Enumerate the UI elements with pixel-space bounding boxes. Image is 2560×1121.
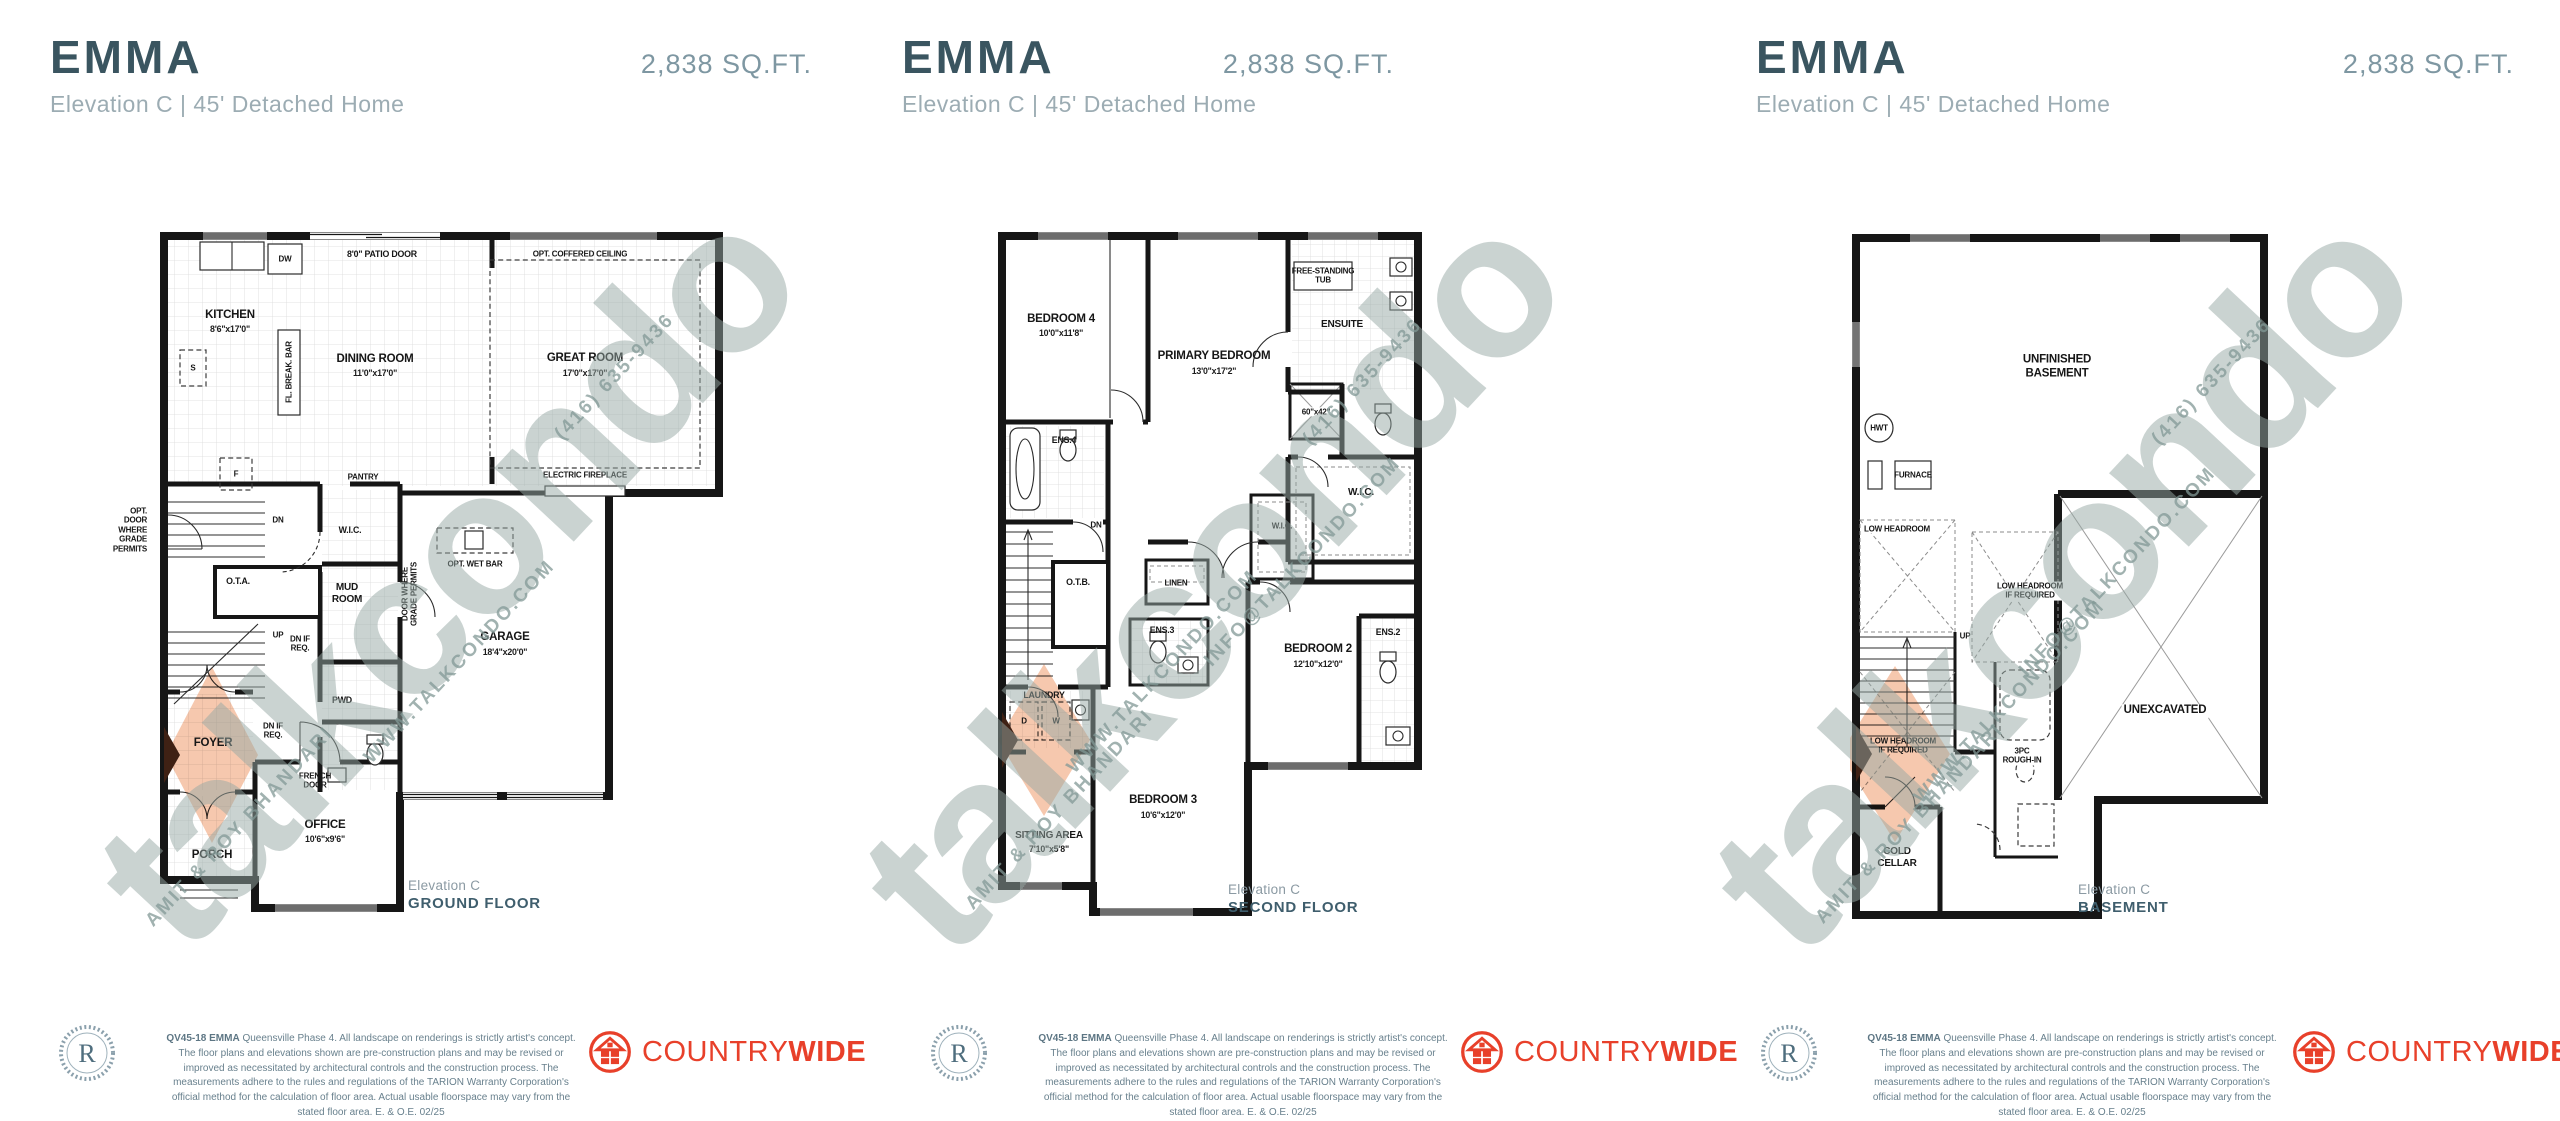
floor-caption: Elevation C GROUND FLOOR — [408, 878, 541, 912]
unexcavated-area — [2058, 494, 2264, 800]
seal-icon: R — [1760, 1024, 1818, 1082]
label-opt-door-grade: OPT. DOOR WHERE GRADE PERMITS — [113, 506, 147, 553]
label-ensuite: ENSUITE — [1321, 319, 1363, 331]
label-break-bar: FL. BREAK. BAR — [284, 341, 293, 403]
caption-elevation: Elevation C — [2078, 882, 2169, 897]
floor-caption: Elevation C SECOND FLOOR — [1228, 882, 1358, 916]
tile-floor-main — [168, 240, 715, 486]
countrywide-wordmark: COUNTRYWIDE — [2346, 1036, 2560, 1069]
plan-sqft: 2,838 SQ.FT. — [641, 49, 812, 80]
panel-second-floor: EMMA 2,838 SQ.FT. Elevation C | 45' Deta… — [902, 30, 1394, 118]
plan-title: EMMA — [50, 30, 203, 84]
label-ens4: ENS.4 — [1052, 435, 1076, 445]
label-dn-if-req-1: DN IF REQ. — [290, 635, 310, 654]
label-pwd: PWD — [332, 695, 352, 705]
label-kitchen: KITCHEN — [205, 309, 255, 323]
label-laundry: LAUNDRY — [1023, 690, 1064, 700]
caption-elevation: Elevation C — [1228, 882, 1358, 897]
disclaimer: QV45-18 EMMA Queensville Phase 4. All la… — [1866, 1032, 2278, 1121]
plan-title: EMMA — [902, 30, 1055, 84]
countrywide-logo: COUNTRYWIDE — [2292, 1030, 2560, 1074]
panel-header: EMMA 2,838 SQ.FT. — [50, 30, 812, 84]
plan-sqft: 2,838 SQ.FT. — [2343, 49, 2514, 80]
label-fireplace: ELECTRIC FIREPLACE — [541, 470, 629, 479]
brand-regular: COUNTRY — [642, 1036, 788, 1068]
label-great-dims: 17'0"x17'0" — [563, 368, 608, 378]
disclaimer-body: Queensville Phase 4. All landscape on re… — [1044, 1033, 1448, 1118]
label-bedroom2-dims: 12'10"x12'0" — [1293, 659, 1342, 669]
plan-title: EMMA — [1756, 30, 1909, 84]
label-office: OFFICE — [305, 819, 346, 833]
label-sitting-dims: 7'10"x5'8" — [1029, 844, 1069, 854]
label-coffered: OPT. COFFERED CEILING — [533, 249, 627, 258]
label-dw: DW — [279, 254, 292, 263]
label-linen: LINEN — [1164, 578, 1187, 587]
porch-steps — [180, 890, 238, 898]
seal-letter: R — [1780, 1039, 1798, 1068]
label-up: UP — [1960, 631, 1971, 640]
countrywide-house-icon — [588, 1030, 632, 1074]
label-kitchen-dims: 8'6"x17'0" — [210, 324, 250, 334]
label-bedroom4: BEDROOM 4 — [1027, 313, 1095, 327]
brand-bold: WIDE — [1660, 1036, 1738, 1068]
floor-caption: Elevation C BASEMENT — [2078, 882, 2169, 916]
panel-ground-floor: EMMA 2,838 SQ.FT. Elevation C | 45' Deta… — [50, 30, 812, 118]
label-porch: PORCH — [192, 849, 233, 863]
label-tub: FREE-STANDING TUB — [1292, 267, 1355, 286]
countrywide-wordmark: COUNTRYWIDE — [1514, 1036, 1738, 1069]
label-office-dims: 10'6"x9'6" — [305, 834, 345, 844]
label-dn: DN — [272, 515, 283, 524]
plan-subtitle: Elevation C | 45' Detached Home — [902, 91, 1394, 118]
second-floor-plan: talkcondo (416) 635-9436 INFO@TALKCONDO.… — [998, 232, 1422, 934]
countrywide-logo: COUNTRYWIDE — [1460, 1030, 1738, 1074]
plan-sqft: 2,838 SQ.FT. — [1223, 49, 1394, 80]
label-wet-bar: OPT. WET BAR — [448, 559, 503, 568]
label-bedroom4-dims: 10'0"x11'8" — [1039, 328, 1083, 338]
label-dn: DN — [1090, 520, 1101, 529]
label-fridge: F — [234, 469, 239, 478]
disclaimer-body: Queensville Phase 4. All landscape on re… — [1873, 1033, 2277, 1118]
windows — [1853, 235, 2231, 368]
seal-icon: R — [58, 1024, 116, 1082]
caption-elevation: Elevation C — [408, 878, 541, 893]
label-shower: 60"x42" — [1301, 407, 1331, 416]
label-garage-dims: 18'4"x20'0" — [483, 647, 528, 657]
disclaimer-code: QV45-18 EMMA — [166, 1033, 239, 1044]
label-sitting: SITTING AREA — [1015, 830, 1083, 842]
panel-basement: EMMA 2,838 SQ.FT. Elevation C | 45' Deta… — [1756, 30, 2514, 118]
registered-seal: R — [930, 1024, 988, 1087]
label-low-headroom-req-center: LOW HEADROOM IF REQUIRED — [1996, 582, 2064, 601]
label-garage: GARAGE — [480, 631, 529, 645]
label-bedroom2: BEDROOM 2 — [1284, 643, 1352, 657]
label-french-door: FRENCH DOOR — [299, 772, 331, 791]
label-furnace: FURNACE — [1894, 470, 1932, 479]
registered-seal: R — [1760, 1024, 1818, 1087]
plan-subtitle: Elevation C | 45' Detached Home — [1756, 91, 2514, 118]
countrywide-logo: COUNTRYWIDE — [588, 1030, 866, 1074]
seal-letter: R — [950, 1039, 968, 1068]
disclaimer: QV45-18 EMMA Queensville Phase 4. All la… — [1037, 1032, 1449, 1121]
disclaimer-code: QV45-18 EMMA — [1867, 1033, 1940, 1044]
countrywide-house-icon — [1460, 1030, 1504, 1074]
label-otb: O.T.B. — [1066, 577, 1090, 587]
label-ens3: ENS.3 — [1150, 625, 1174, 635]
label-wic-big: W.I.C. — [1348, 487, 1374, 499]
stairs — [1006, 530, 1108, 680]
caption-floor: BASEMENT — [2078, 899, 2169, 916]
seal-letter: R — [78, 1039, 96, 1068]
label-pantry: PANTRY — [348, 472, 379, 481]
label-low-headroom-req-left: LOW HEADROOM IF REQUIRED — [1870, 737, 1936, 756]
label-dn-if-req-2: DN IF REQ. — [263, 722, 283, 741]
label-primary-dims: 13'0"x17'2" — [1192, 366, 1237, 376]
label-wic: W.I.C. — [339, 525, 362, 535]
brand-bold: WIDE — [788, 1036, 866, 1068]
panel-header: EMMA 2,838 SQ.FT. — [1756, 30, 2514, 84]
brand-regular: COUNTRY — [1514, 1036, 1660, 1068]
label-door-grade: DOOR WHERE GRADE PERMITS — [401, 562, 420, 626]
label-patio-door: 8'0" PATIO DOOR — [347, 249, 417, 259]
disclaimer-code: QV45-18 EMMA — [1038, 1033, 1111, 1044]
basement-plan: talkcondo (416) 635-9436 INFO@TALKCONDO.… — [1850, 232, 2270, 934]
brand-regular: COUNTRY — [2346, 1036, 2492, 1068]
countrywide-house-icon — [2292, 1030, 2336, 1074]
registered-seal: R — [58, 1024, 116, 1087]
label-mud-room: MUD ROOM — [332, 582, 362, 606]
label-dining: DINING ROOM — [336, 353, 413, 367]
caption-floor: SECOND FLOOR — [1228, 899, 1358, 916]
seal-icon: R — [930, 1024, 988, 1082]
label-ens2: ENS.2 — [1376, 627, 1400, 637]
label-hwt: HWT — [1870, 423, 1888, 432]
label-great-room: GREAT ROOM — [547, 352, 623, 366]
label-dryer: D — [1021, 716, 1027, 725]
disclaimer-body: Queensville Phase 4. All landscape on re… — [172, 1033, 576, 1118]
label-bedroom3: BEDROOM 3 — [1129, 794, 1197, 808]
label-cold-cellar: COLD CELLAR — [1877, 846, 1916, 870]
caption-floor: GROUND FLOOR — [408, 895, 541, 912]
label-washer: W — [1052, 716, 1059, 725]
countrywide-wordmark: COUNTRYWIDE — [642, 1036, 866, 1069]
label-primary: PRIMARY BEDROOM — [1158, 350, 1271, 364]
ground-floor-plan: talkcondo (416) 635-9436 WWW.TALKCONDO.C… — [160, 232, 723, 942]
stairs — [168, 502, 320, 704]
label-unfinished-basement: UNFINISHED BASEMENT — [2023, 353, 2091, 380]
brand-bold: WIDE — [2492, 1036, 2560, 1068]
label-dining-dims: 11'0"x17'0" — [353, 368, 397, 378]
ground-floor-drawing — [160, 232, 723, 942]
label-wic-small: W.I.C. — [1272, 521, 1293, 530]
panel-header: EMMA 2,838 SQ.FT. — [902, 30, 1394, 84]
disclaimer: QV45-18 EMMA Queensville Phase 4. All la… — [165, 1032, 577, 1121]
label-low-headroom: LOW HEADROOM — [1863, 524, 1931, 533]
label-bedroom3-dims: 10'6"x12'0" — [1141, 810, 1186, 820]
label-foyer: FOYER — [194, 737, 233, 751]
label-ota: O.T.A. — [226, 576, 250, 586]
label-rough-in: 3PC ROUGH-IN — [2002, 747, 2043, 766]
label-up: UP — [273, 630, 284, 639]
plan-subtitle: Elevation C | 45' Detached Home — [50, 91, 812, 118]
label-sink: S — [190, 363, 195, 372]
label-unexcavated: UNEXCAVATED — [2122, 704, 2209, 718]
